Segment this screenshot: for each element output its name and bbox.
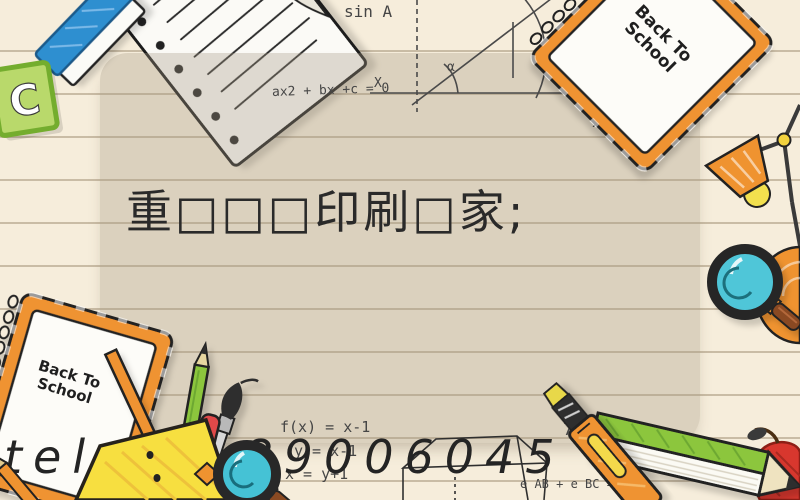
page-title: 重□□□印刷□家; — [126, 176, 526, 242]
back-to-school-banner: ax2 + bx +c = 0 sin A X α 3X2+ f(x) = x-… — [0, 0, 800, 500]
cup-body-icon — [76, 420, 233, 500]
doodles-foreground-layer — [0, 0, 800, 500]
corner-pencil-icon — [0, 450, 45, 500]
